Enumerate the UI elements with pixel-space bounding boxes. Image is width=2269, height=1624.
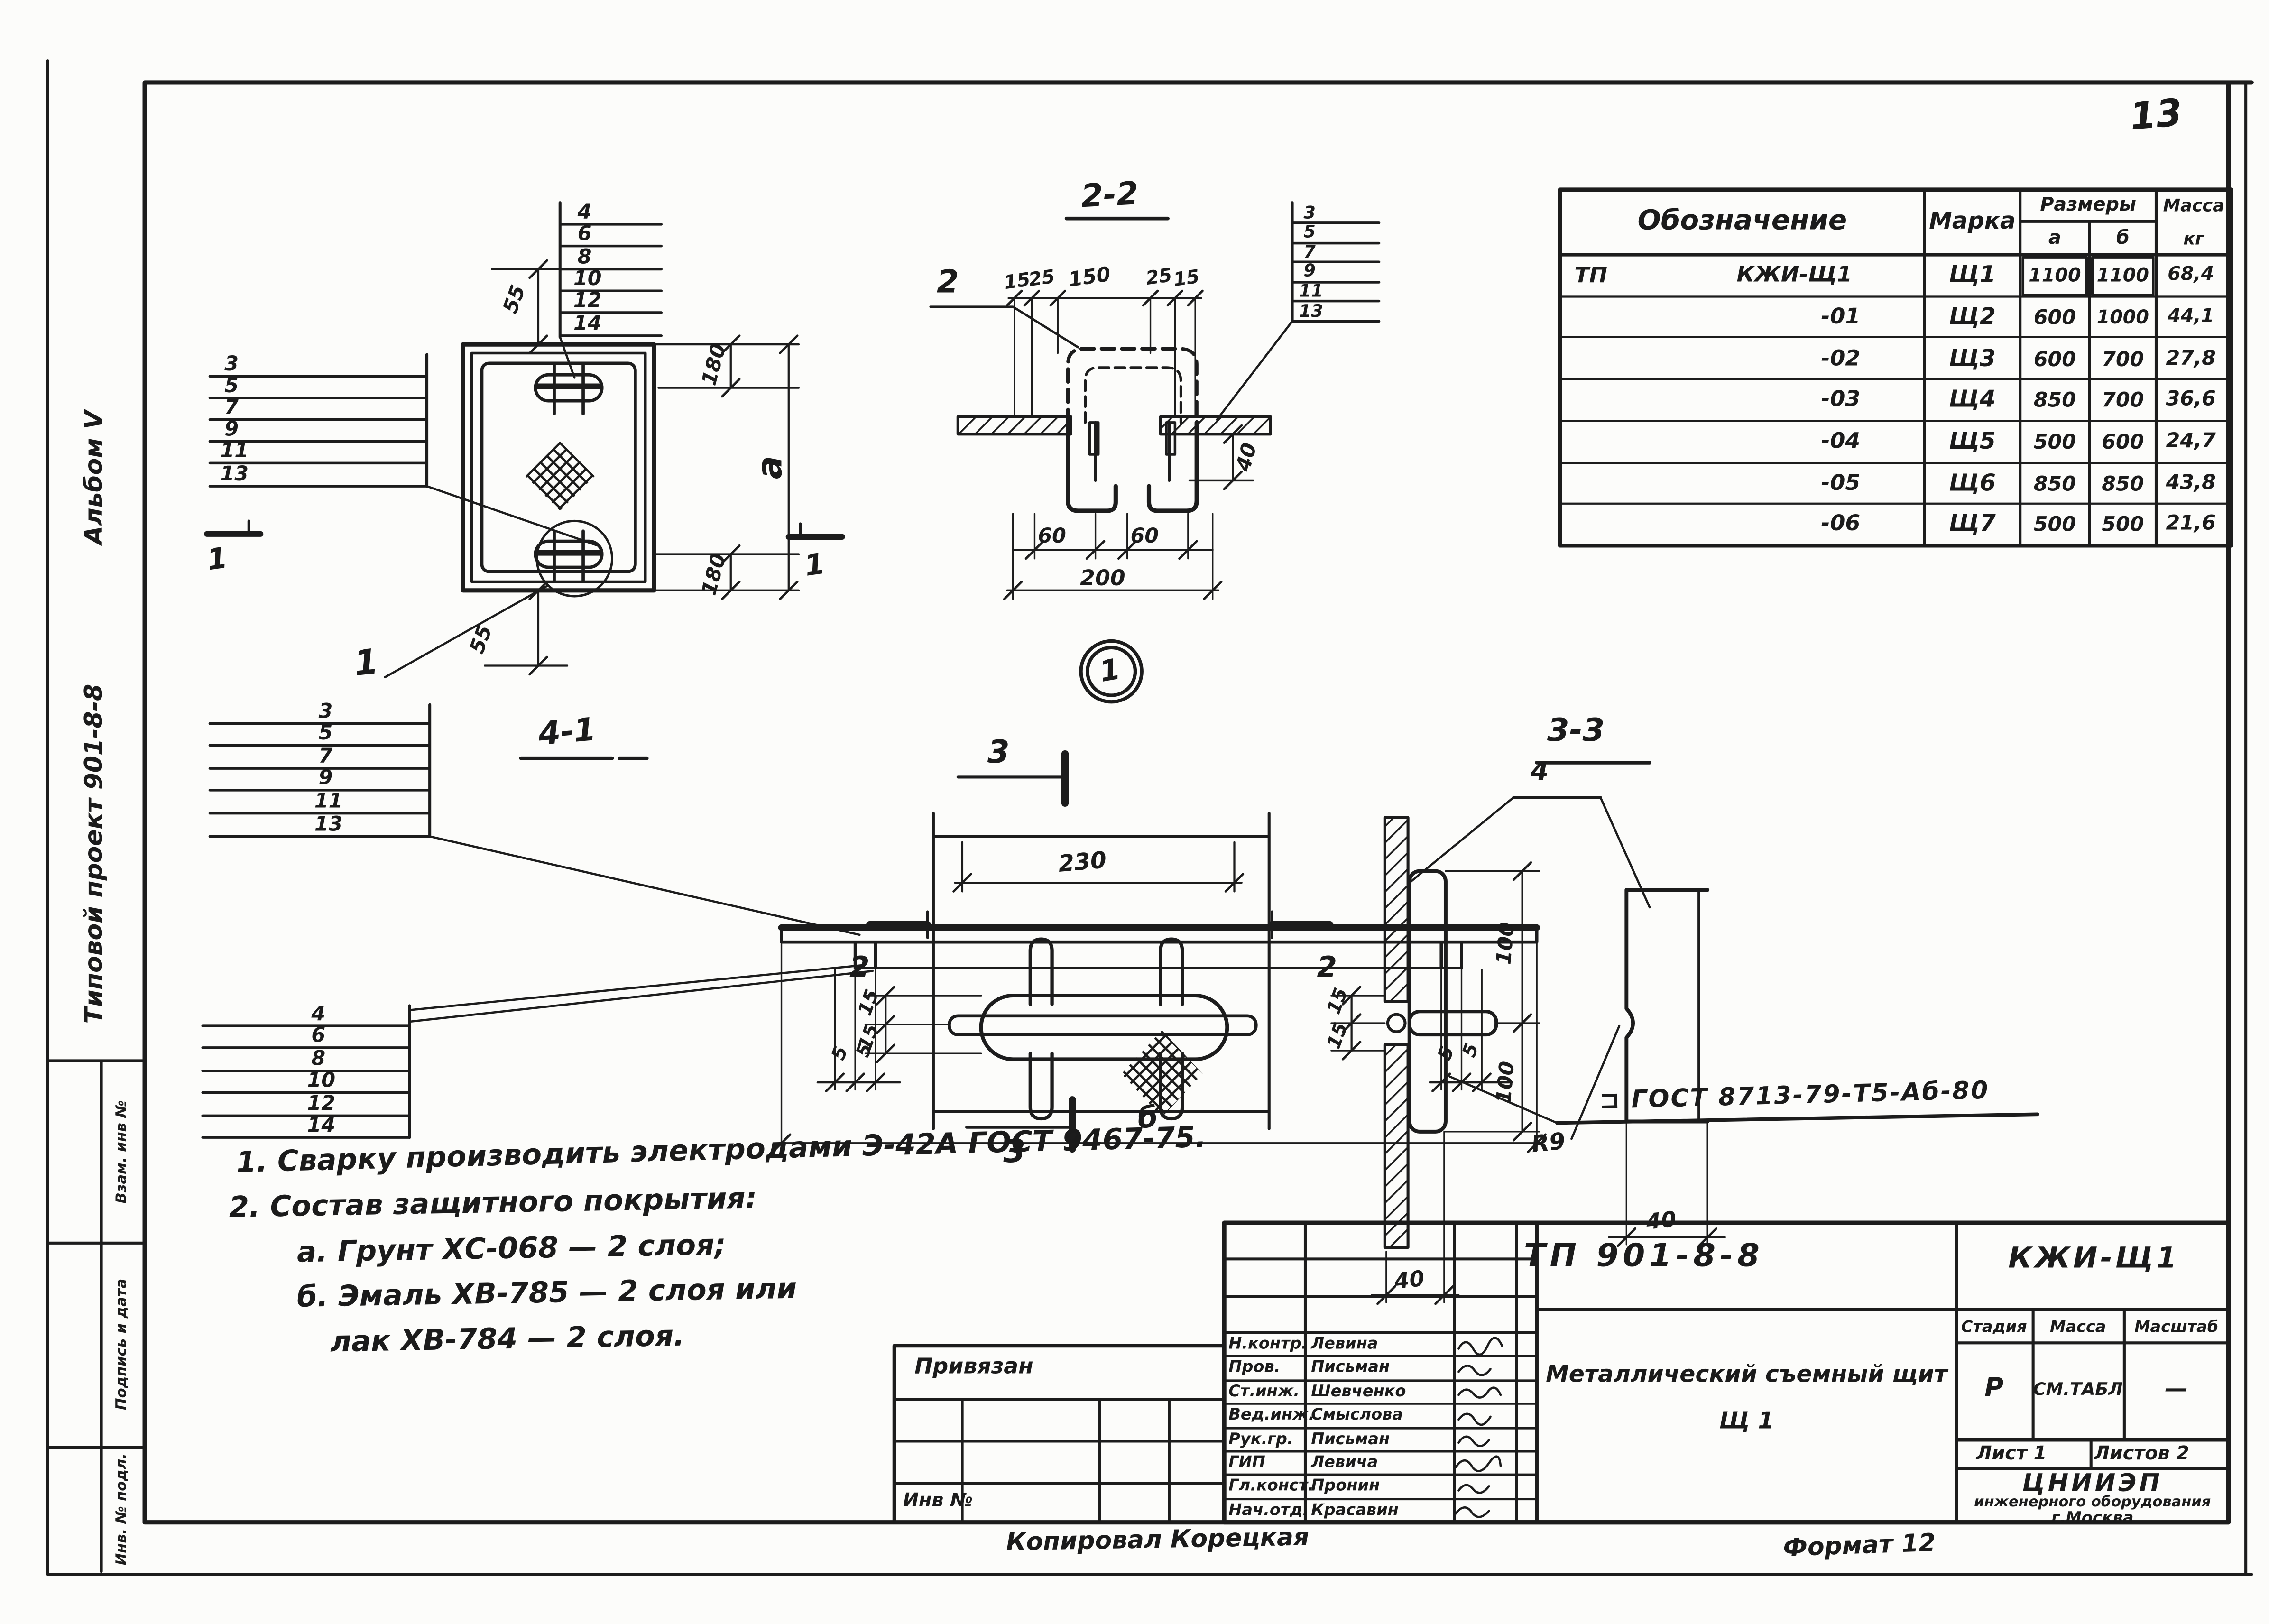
callout-number: 11 xyxy=(221,442,249,462)
leader-label: 2 xyxy=(937,268,959,299)
copy-note: Копировал Корецкая xyxy=(1006,1526,1310,1556)
signer-name: Красавин xyxy=(1311,1502,1399,1518)
signer-role: Вед.инж. xyxy=(1228,1407,1314,1423)
row-mass: 27,8 xyxy=(2166,349,2216,369)
signer-name: Шевченко xyxy=(1311,1384,1406,1400)
dim-label: 200 xyxy=(1080,568,1125,590)
row-designation: -03 xyxy=(1821,388,1861,410)
callout-number: 8 xyxy=(578,248,592,268)
note-line: лак ХВ-784 — 2 слоя. xyxy=(330,1321,685,1356)
row-mark: Щ2 xyxy=(1949,305,1996,329)
signer-role: ГИП xyxy=(1228,1454,1265,1470)
callout-number: 7 xyxy=(224,398,239,418)
row-size-b: 850 xyxy=(2102,475,2144,495)
callout-number: 6 xyxy=(311,1026,325,1046)
stage-label: Стадия xyxy=(1961,1319,2027,1335)
sidebar-stamp-label: Взам. инв № xyxy=(116,1100,130,1204)
scale-value: — xyxy=(2165,1378,2188,1401)
sheet-info: Лист 1 xyxy=(1976,1445,2047,1464)
section-mark: 1 xyxy=(802,549,827,580)
row-mark: Щ3 xyxy=(1949,347,1996,370)
row-mark: Щ5 xyxy=(1949,430,1996,453)
sidebar-project-label: Типовой проект 901-8-8 xyxy=(83,684,108,1024)
row-size-b: 700 xyxy=(2102,350,2144,370)
section-title: 2-2 xyxy=(1080,179,1140,214)
row-mass: 43,8 xyxy=(2166,473,2216,494)
row-designation: -06 xyxy=(1821,513,1861,535)
sidebar-album-label: Альбом V xyxy=(83,410,108,544)
dim-label: 100 xyxy=(1494,1061,1518,1105)
row-size-b: 1100 xyxy=(2097,267,2149,286)
parts-table-header-mass-unit: кг xyxy=(2183,230,2204,248)
parts-table-header-size-a: а xyxy=(2048,230,2061,249)
page-number: 13 xyxy=(2129,95,2184,137)
note-line: 2. Состав защитного покрытия: xyxy=(229,1183,757,1221)
signer-role: Ст.инж. xyxy=(1228,1384,1300,1400)
row-mark: Щ7 xyxy=(1949,512,1996,535)
callout-number: 10 xyxy=(573,269,601,289)
row-size-a: 500 xyxy=(2034,515,2076,535)
row-size-b: 1000 xyxy=(2097,309,2149,328)
callout-number: 10 xyxy=(307,1071,335,1091)
dim-label: 40 xyxy=(1393,1268,1426,1293)
callout-number: 13 xyxy=(1299,303,1323,320)
callout-number: 5 xyxy=(224,376,239,397)
stage-value: Р xyxy=(1984,1376,2003,1403)
row-size-b: 600 xyxy=(2102,433,2144,453)
dim-label: 25 xyxy=(1145,267,1173,289)
row-size-b: 500 xyxy=(2102,515,2144,535)
row-size-a: 850 xyxy=(2034,475,2076,495)
section-title: 4-1 xyxy=(537,715,598,752)
row-mass: 21,6 xyxy=(2166,514,2216,534)
handle-plan-lines xyxy=(865,754,1329,1149)
sidebar-stamp-label: Подпись и дата xyxy=(116,1279,130,1410)
row-mass: 68,4 xyxy=(2168,266,2214,285)
sheets-info: Листов 2 xyxy=(2094,1445,2189,1464)
drawing-title: Металлический съемный щит xyxy=(1546,1363,1947,1386)
row-size-a: 500 xyxy=(2034,433,2076,453)
row-size-a: 600 xyxy=(2034,350,2076,370)
section-mark: 2 xyxy=(849,952,869,981)
leader-label: 4 xyxy=(1531,760,1549,786)
drawing-title: Щ 1 xyxy=(1719,1410,1774,1433)
callout-number: 14 xyxy=(573,314,601,334)
callout-number: 5 xyxy=(1303,223,1316,240)
callout-number: 11 xyxy=(314,792,342,812)
section-title: 3-3 xyxy=(1547,716,1605,748)
detail-callout-label: 1 xyxy=(352,644,380,681)
signer-name: Письман xyxy=(1311,1431,1390,1447)
dim-label: 40 xyxy=(1645,1209,1677,1234)
row-designation: КЖИ-Щ1 xyxy=(1737,264,1852,286)
row-designation: -05 xyxy=(1821,472,1861,494)
parts-table-header-designation: Обозначение xyxy=(1638,208,1847,235)
callout-number: 6 xyxy=(578,224,592,245)
doc-code: ТП 901-8-8 xyxy=(1524,1242,1764,1273)
dim-label: R9 xyxy=(1530,1130,1566,1156)
dim-label: 230 xyxy=(1057,849,1107,877)
note-line: б. Эмаль ХВ-785 — 2 слоя или xyxy=(296,1273,797,1311)
row-designation: -01 xyxy=(1821,306,1861,328)
dim-label: 15 xyxy=(1172,268,1201,290)
attach-label: Привязан xyxy=(914,1356,1033,1378)
callout-number: 3 xyxy=(224,354,239,375)
callout-number: 4 xyxy=(578,203,592,223)
drawing-sheet: 13 Альбом V Типовой проект 901-8-8 Взам.… xyxy=(0,0,2269,1624)
mass-label: Масса xyxy=(2050,1319,2106,1335)
sidebar-stamp-label: Инв. № подл. xyxy=(116,1453,130,1565)
dim-label: 15 xyxy=(1003,271,1032,293)
row-mass: 24,7 xyxy=(2166,431,2216,452)
callout-number: 9 xyxy=(319,768,333,789)
section-mark: 1 xyxy=(205,543,229,574)
signer-name: Письман xyxy=(1311,1359,1390,1375)
signer-role: Н.контр. xyxy=(1228,1336,1307,1352)
dim-label: а xyxy=(753,456,787,479)
row-mass: 44,1 xyxy=(2168,307,2214,326)
signer-name: Левина xyxy=(1311,1336,1378,1352)
dim-label: 25 xyxy=(1028,268,1056,290)
row-designation: -04 xyxy=(1821,431,1861,452)
callout-number: 3 xyxy=(319,702,333,722)
inventory-label: Инв № xyxy=(903,1492,973,1511)
parts-table-header-sizes: Размеры xyxy=(2040,196,2136,215)
callout-number: 12 xyxy=(307,1094,335,1115)
plan-view-lines xyxy=(207,203,842,677)
callout-number: 11 xyxy=(1299,282,1323,300)
note-line: а. Грунт ХС-068 — 2 слоя; xyxy=(296,1230,726,1266)
signer-role: Пров. xyxy=(1228,1359,1280,1375)
row-size-a: 600 xyxy=(2034,308,2076,329)
section-mark: 3 xyxy=(987,738,1010,770)
section-mark: 2 xyxy=(1317,952,1337,981)
callout-number: 7 xyxy=(1303,243,1316,261)
parts-table-header-mark: Марка xyxy=(1929,210,2016,233)
parts-table-header-size-b: б xyxy=(2116,230,2130,249)
dim-label: 60 xyxy=(1131,527,1159,547)
row-size-b: 700 xyxy=(2102,391,2144,411)
signer-name: Смыслова xyxy=(1311,1407,1403,1423)
callout-number: 4 xyxy=(311,1004,325,1024)
callout-number: 13 xyxy=(314,815,342,835)
callout-number: 14 xyxy=(307,1116,335,1136)
format-note: Формат 12 xyxy=(1783,1532,1937,1562)
signer-name: Левича xyxy=(1311,1454,1378,1470)
row-prefix: ТП xyxy=(1574,265,1607,286)
signer-name: Пронин xyxy=(1311,1477,1380,1494)
callout-number: 12 xyxy=(573,291,601,311)
row-mark: Щ6 xyxy=(1949,472,1996,495)
row-designation: -02 xyxy=(1821,348,1861,370)
parts-table-header-mass: Масса xyxy=(2163,197,2224,214)
scale-label: Масштаб xyxy=(2134,1319,2218,1335)
dim-label: 60 xyxy=(1038,527,1066,547)
row-mark: Щ1 xyxy=(1949,263,1996,286)
callout-number: 9 xyxy=(1303,262,1316,279)
signer-role: Нач.отд. xyxy=(1228,1502,1309,1518)
row-size-a: 850 xyxy=(2034,391,2076,411)
callout-number: 5 xyxy=(319,724,333,744)
mass-value: СМ.ТАБЛ xyxy=(2033,1381,2123,1398)
row-mark: Щ4 xyxy=(1949,388,1996,411)
callout-number: 13 xyxy=(221,464,249,485)
signer-role: Рук.гр. xyxy=(1228,1431,1293,1447)
callout-number: 7 xyxy=(319,747,333,767)
item-code: КЖИ-Щ1 xyxy=(2008,1243,2179,1272)
org-name: г.Москва xyxy=(2051,1510,2133,1526)
signer-role: Гл.конст. xyxy=(1228,1477,1314,1494)
row-mass: 36,6 xyxy=(2166,389,2216,410)
callout-number: 8 xyxy=(311,1049,325,1070)
callout-number: 3 xyxy=(1303,204,1316,221)
row-size-a: 1100 xyxy=(2029,267,2081,286)
dim-label: 100 xyxy=(1494,922,1518,966)
dim-label: 150 xyxy=(1067,265,1112,291)
callout-number: 9 xyxy=(224,420,239,440)
org-name: ЦНИИЭП xyxy=(2022,1472,2163,1497)
